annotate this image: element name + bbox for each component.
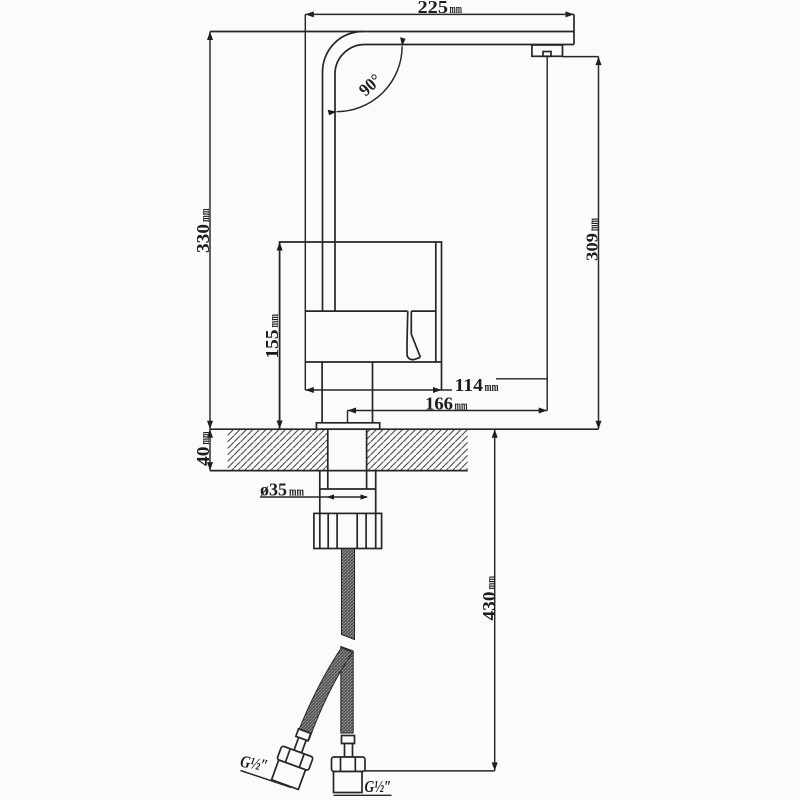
svg-text:330: 330 (193, 224, 213, 253)
svg-text:mm: mm (455, 398, 468, 413)
svg-text:mm: mm (266, 314, 281, 328)
svg-text:155: 155 (262, 330, 282, 359)
svg-text:114: 114 (455, 375, 484, 395)
svg-text:mm: mm (483, 576, 498, 590)
svg-text:mm: mm (289, 484, 304, 499)
svg-text:G½″: G½″ (365, 777, 392, 796)
svg-text:40: 40 (193, 447, 213, 467)
svg-text:ø35: ø35 (260, 480, 287, 500)
svg-text:mm: mm (197, 431, 212, 444)
svg-text:mm: mm (586, 218, 601, 231)
svg-text:mm: mm (450, 1, 463, 16)
svg-text:430: 430 (479, 592, 499, 621)
svg-text:166: 166 (425, 394, 453, 414)
svg-text:mm: mm (197, 208, 212, 222)
svg-text:225: 225 (418, 0, 449, 17)
svg-text:309: 309 (583, 233, 602, 261)
svg-text:mm: mm (485, 379, 499, 394)
